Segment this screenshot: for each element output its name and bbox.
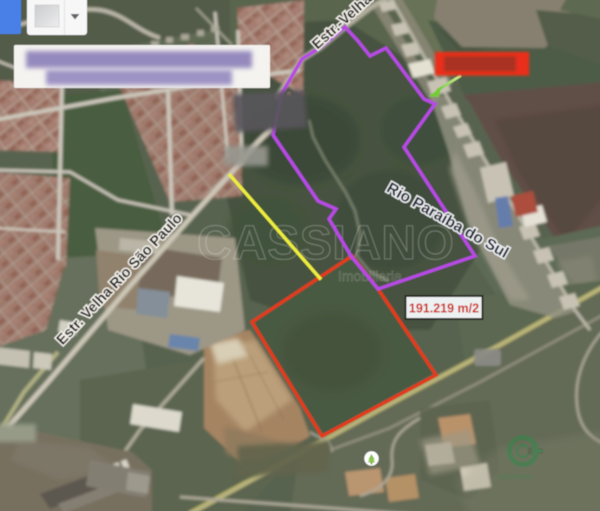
svg-text:CASSIANO: CASSIANO: [197, 217, 454, 270]
svg-text:191.219 m/2: 191.219 m/2: [409, 302, 479, 316]
svg-text:cricampo: cricampo: [498, 471, 533, 481]
